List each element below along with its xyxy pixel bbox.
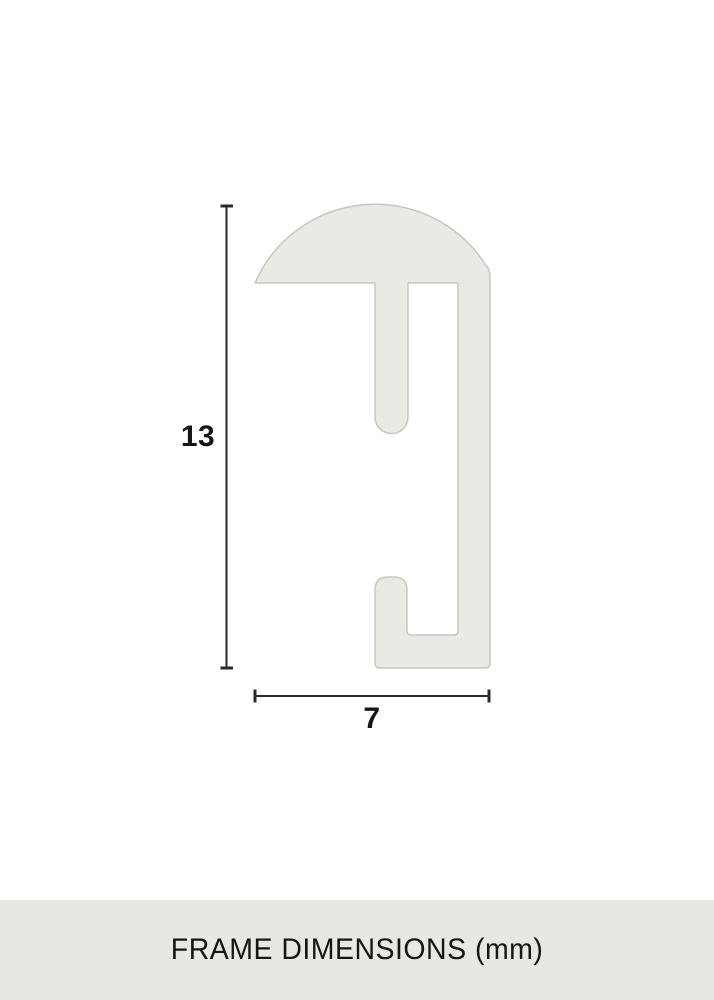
width-dimension-value: 7 xyxy=(352,702,392,736)
footer-title: FRAME DIMENSIONS (mm) xyxy=(171,933,544,967)
footer-bar: FRAME DIMENSIONS (mm) xyxy=(0,900,714,1000)
frame-dimension-diagram: 13 7 FRAME DIMENSIONS (mm) xyxy=(0,0,714,1000)
profile-diagram-svg xyxy=(0,0,714,900)
width-dimension-line xyxy=(255,690,489,703)
frame-profile-shape xyxy=(255,204,490,668)
diagram-area: 13 7 xyxy=(0,0,714,900)
height-dimension-value: 13 xyxy=(178,420,218,454)
height-dimension-line xyxy=(221,206,234,668)
